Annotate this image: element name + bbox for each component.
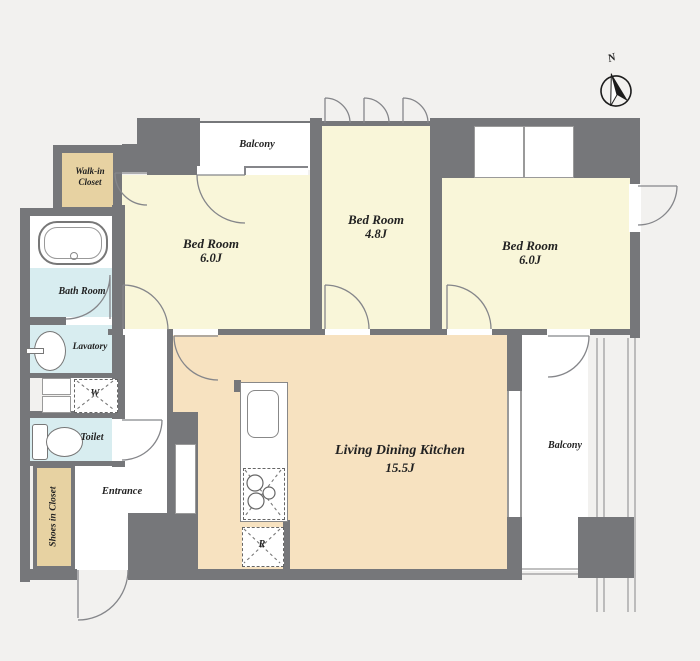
- faucet-icon: [26, 348, 44, 354]
- compass-north-label: N: [599, 49, 626, 69]
- wall-segment: [283, 520, 290, 570]
- corridor-floor: [125, 335, 167, 465]
- wall-segment: [20, 208, 30, 582]
- wall-segment: [507, 335, 522, 391]
- refrigerator-label: R: [247, 539, 277, 551]
- door-opening: [447, 329, 492, 335]
- closet-panel-right: [524, 126, 574, 178]
- door-opening: [123, 329, 167, 335]
- bedroom-right-label: Bed Room 6.0J: [470, 238, 590, 268]
- hall-storage: [175, 444, 196, 514]
- wall-segment: [370, 329, 447, 335]
- wall-segment: [137, 118, 200, 146]
- window-casement-arcs: [325, 98, 428, 123]
- bedroom-left-label: Bed Room 6.0J: [151, 236, 271, 266]
- wall-segment: [590, 329, 640, 335]
- door-opening: [547, 329, 590, 335]
- wall-segment: [20, 569, 77, 580]
- wall-segment: [320, 121, 430, 126]
- wall-segment: [122, 144, 200, 172]
- wall-segment: [128, 513, 173, 569]
- bath-label: Bath Room: [42, 286, 122, 298]
- storage-box-bottom: [42, 396, 71, 413]
- lavatory-label: Lavatory: [60, 342, 120, 353]
- shoes-closet-label: Shoes in Closet: [48, 464, 59, 570]
- door-opening: [173, 329, 218, 335]
- balcony-right-floor: [522, 335, 588, 571]
- closet-panel-left: [474, 126, 524, 178]
- kitchen-sink-icon: [247, 390, 279, 438]
- wall-segment: [218, 329, 325, 335]
- walk-in-closet-label: Walk-in Closet: [55, 166, 125, 187]
- door-opening: [629, 184, 641, 232]
- wall-segment: [507, 517, 522, 569]
- ldk-label: Living Dining Kitchen 15.5J: [290, 443, 510, 475]
- toilet-label: Toilet: [62, 432, 122, 444]
- wall-segment: [147, 170, 197, 175]
- balcony-right-label: Balcony: [525, 440, 605, 452]
- entrance-label: Entrance: [72, 486, 172, 498]
- bedroom-middle-label: Bed Room 4.8J: [316, 212, 436, 242]
- compass-icon: [597, 70, 635, 110]
- wall-segment: [128, 569, 522, 580]
- door-opening: [197, 166, 245, 175]
- storage-box-top: [42, 378, 71, 395]
- wall-segment: [108, 329, 123, 335]
- entrance-floor-lower: [75, 513, 128, 570]
- wall-segment: [20, 208, 125, 216]
- floor-plan: N Balcony Walk-in Closet Bed Room 6.0J B…: [0, 0, 700, 661]
- stove-icon: [243, 468, 285, 520]
- door-opening: [325, 329, 370, 335]
- balcony-top-label: Balcony: [197, 139, 317, 151]
- washer-label: W: [80, 388, 110, 400]
- door-opening: [66, 317, 112, 325]
- bathtub-icon: [38, 221, 108, 265]
